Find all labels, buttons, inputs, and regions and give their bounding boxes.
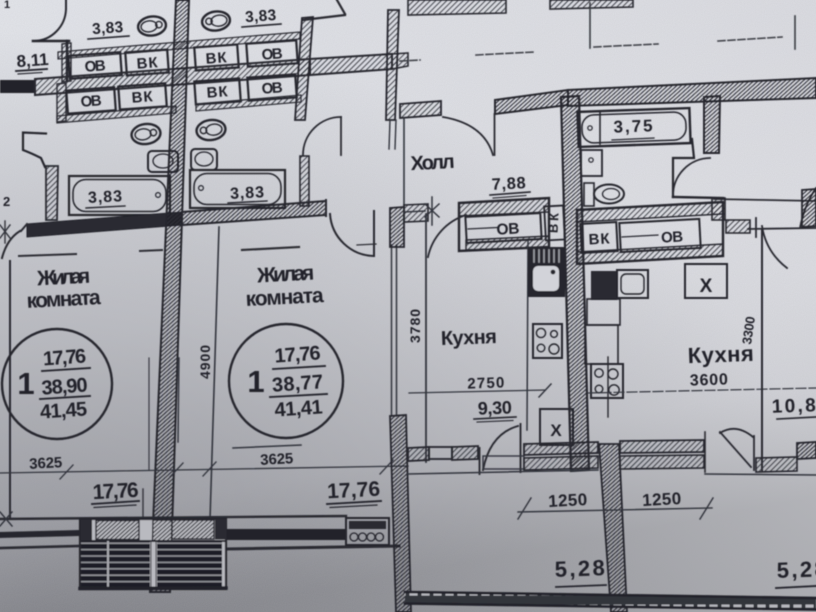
svg-text:Холл: Холл: [410, 151, 455, 175]
svg-text:41,45: 41,45: [39, 398, 87, 423]
svg-text:3625: 3625: [29, 454, 63, 473]
svg-text:комната: комната: [26, 286, 101, 313]
svg-text:3780: 3780: [407, 309, 423, 343]
svg-text:комната: комната: [245, 284, 324, 311]
svg-text:ОВ: ОВ: [80, 92, 102, 110]
svg-text:3,83: 3,83: [88, 188, 123, 207]
svg-text:4900: 4900: [197, 345, 213, 379]
svg-text:5,28: 5,28: [776, 556, 816, 583]
svg-text:ВК: ВК: [206, 83, 229, 101]
svg-text:2750: 2750: [467, 374, 505, 392]
svg-text:3600: 3600: [690, 371, 729, 389]
svg-text:17,76: 17,76: [327, 478, 381, 504]
svg-text:3,75: 3,75: [613, 116, 653, 136]
svg-text:10,8: 10,8: [771, 395, 816, 418]
svg-text:ВК: ВК: [588, 230, 611, 248]
svg-text:Х: Х: [550, 421, 562, 440]
svg-text:Кухня: Кухня: [687, 341, 754, 368]
svg-text:17,76: 17,76: [92, 479, 139, 504]
svg-text:ОВ: ОВ: [661, 228, 684, 246]
svg-text:ВК: ВК: [131, 88, 154, 106]
svg-text:7,88: 7,88: [491, 174, 526, 194]
svg-text:38,77: 38,77: [271, 371, 323, 397]
svg-text:3,83: 3,83: [230, 184, 265, 203]
svg-text:ОВ: ОВ: [84, 57, 106, 75]
svg-text:3,83: 3,83: [92, 19, 124, 38]
svg-text:1250: 1250: [642, 489, 682, 510]
svg-text:1: 1: [17, 366, 34, 401]
svg-text:ОВ: ОВ: [261, 79, 283, 97]
svg-text:1: 1: [4, 0, 10, 11]
svg-text:1: 1: [247, 364, 264, 399]
svg-text:3,83: 3,83: [245, 7, 277, 26]
svg-text:17,76: 17,76: [274, 342, 321, 367]
svg-text:5,28: 5,28: [554, 555, 605, 582]
svg-text:Жилая: Жилая: [256, 262, 315, 288]
svg-text:8,11: 8,11: [16, 50, 49, 71]
svg-text:Кухня: Кухня: [440, 326, 497, 350]
svg-text:ОВ: ОВ: [496, 220, 520, 238]
svg-text:9,30: 9,30: [477, 397, 512, 418]
svg-text:Х: Х: [700, 276, 713, 297]
svg-text:2: 2: [3, 194, 10, 209]
svg-text:1250: 1250: [548, 490, 588, 511]
svg-text:17,76: 17,76: [42, 346, 86, 371]
svg-text:41,41: 41,41: [274, 396, 323, 421]
svg-text:3625: 3625: [260, 450, 294, 469]
